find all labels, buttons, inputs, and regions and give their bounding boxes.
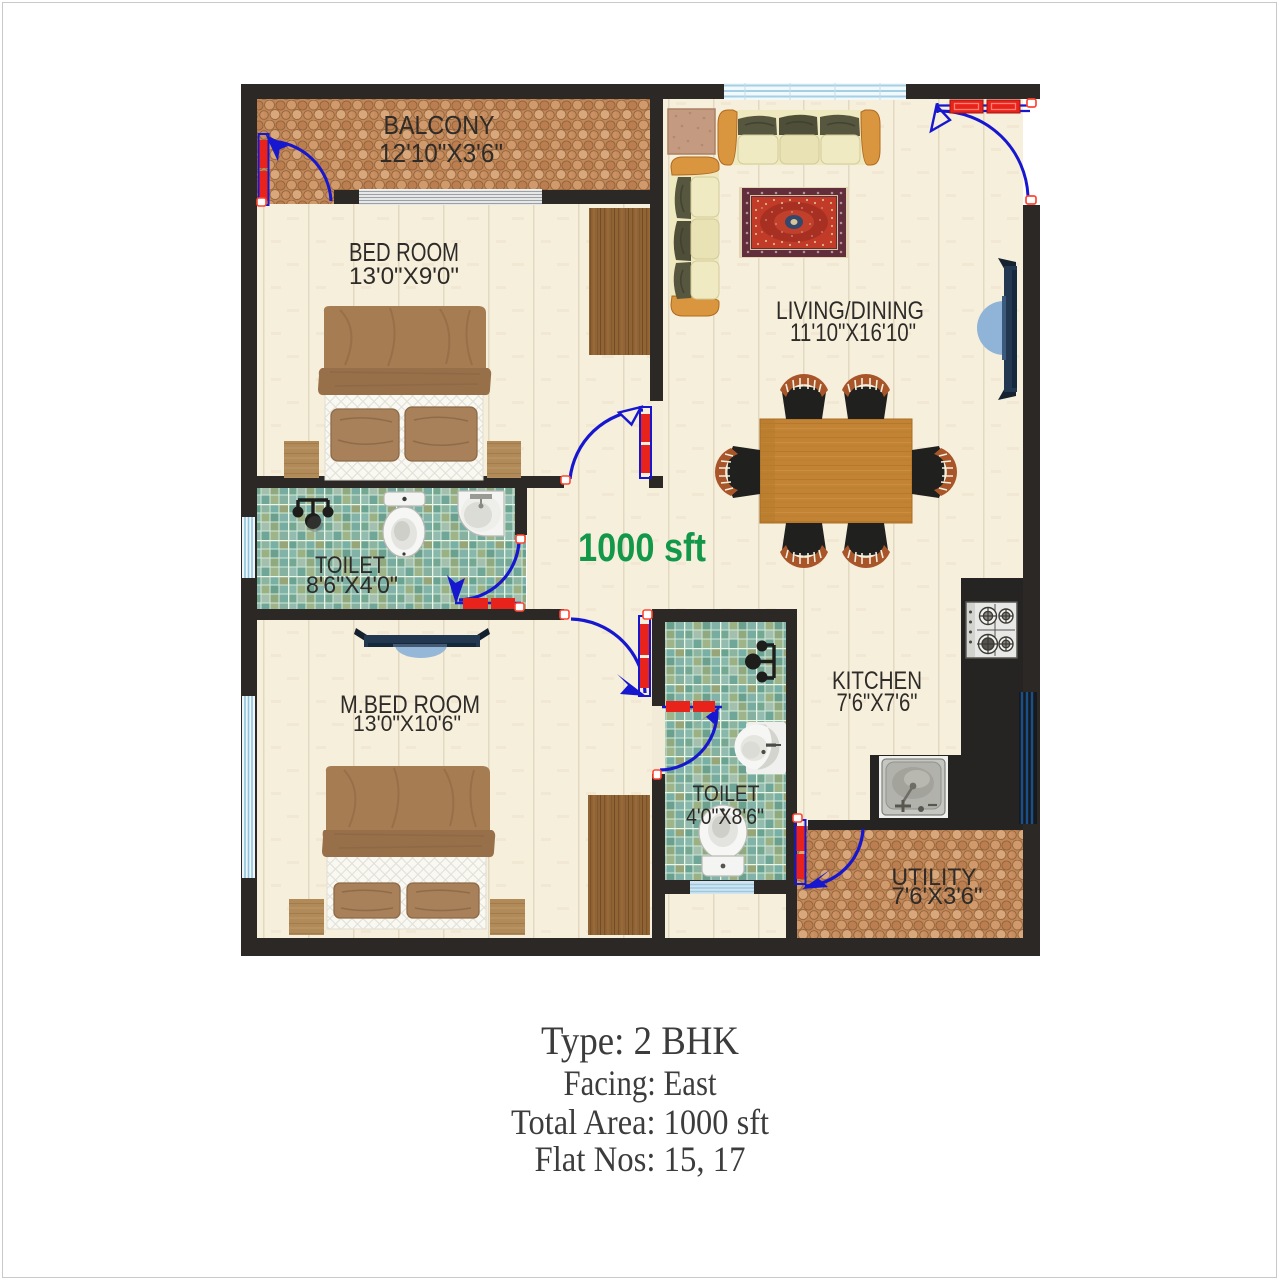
svg-text:13'0"X9'0": 13'0"X9'0" (349, 263, 459, 290)
svg-text:1000 sft: 1000 sft (578, 526, 706, 570)
svg-text:8'6"X4'0": 8'6"X4'0" (306, 572, 398, 599)
svg-text:7'6'X3'6": 7'6'X3'6" (892, 883, 983, 910)
svg-text:12'10"X3'6": 12'10"X3'6" (379, 138, 503, 168)
svg-text:7'6"X7'6": 7'6"X7'6" (837, 689, 918, 717)
svg-text:Total Area: 1000 sft: Total Area: 1000 sft (511, 1102, 769, 1142)
svg-text:Flat Nos: 15, 17: Flat Nos: 15, 17 (535, 1139, 746, 1179)
svg-text:11'10"X16'10": 11'10"X16'10" (790, 319, 916, 347)
svg-text:BALCONY: BALCONY (384, 110, 495, 140)
svg-text:Type: 2 BHK: Type: 2 BHK (541, 1018, 739, 1063)
svg-text:13'0"X10'6": 13'0"X10'6" (353, 711, 461, 736)
svg-text:4'0"X8'6": 4'0"X8'6" (686, 804, 764, 829)
svg-text:TOILET: TOILET (693, 781, 760, 806)
svg-text:Facing: East: Facing: East (564, 1063, 717, 1103)
